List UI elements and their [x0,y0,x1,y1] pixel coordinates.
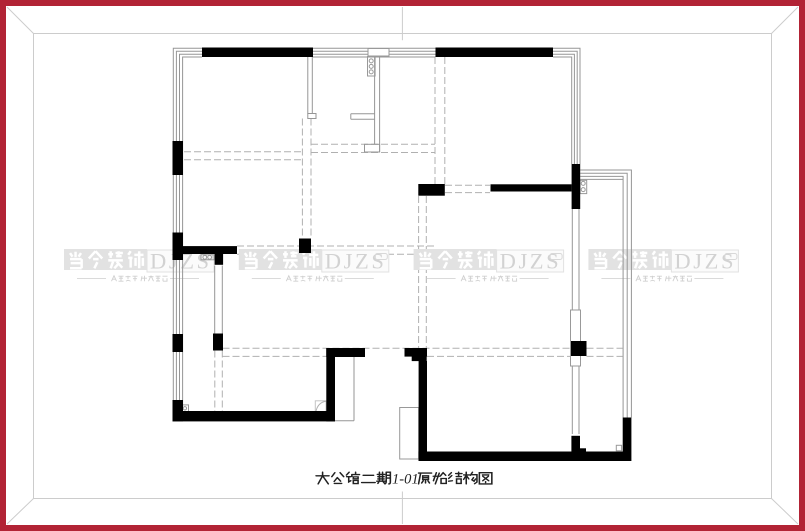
svg-text:1-01: 1-01 [392,472,419,488]
